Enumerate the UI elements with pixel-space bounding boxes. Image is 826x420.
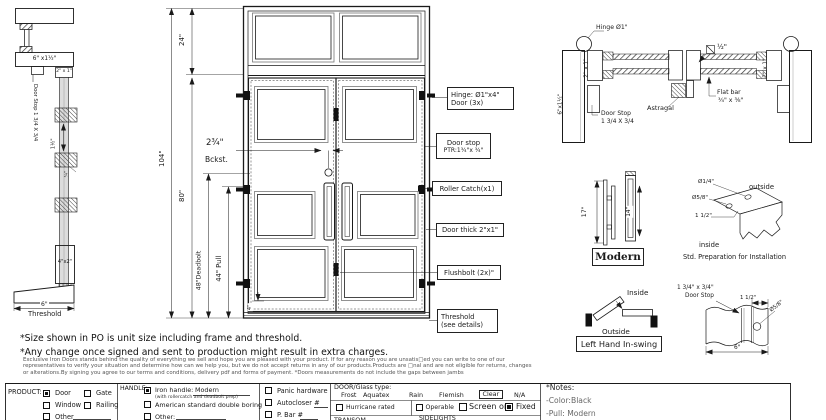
door-stop-note: Door Stop 1 3/4 X 3/4 — [32, 84, 37, 141]
glass-flemish[interactable]: Flemish — [439, 392, 464, 398]
jamb-size-label: 6" x1½" — [20, 57, 69, 63]
option-american-standard[interactable]: American standard double boring — [155, 402, 262, 408]
dim-total-height: 104" — [159, 149, 166, 168]
dim-bottom-rail: 4" — [248, 303, 253, 311]
hinge-circle-left — [577, 37, 592, 52]
checkbox-iron-handle[interactable] — [144, 387, 151, 394]
option-handle-other[interactable]: Other: — [155, 414, 175, 420]
callout-door-thick: Door thick 2"x1" — [436, 223, 504, 237]
callout-doorstop: Door stop PTR:1¾"x ¾" — [436, 133, 491, 159]
notes-pull: -Pull: Modern — [546, 410, 596, 418]
astragal-block — [672, 84, 686, 98]
transom-row-label: TRANSOM — [334, 417, 366, 420]
prep-caption: Std. Preparation for Installation — [683, 254, 786, 261]
plan-astragal-label: Astragal — [647, 105, 674, 112]
swing-handing-text: Left Hand In-swing — [581, 339, 657, 349]
small-dim: ¾" — [66, 171, 70, 177]
prep-inside-label: inside — [699, 242, 719, 249]
dim-transom-height: 24" — [179, 33, 186, 47]
option-door[interactable]: Door — [55, 390, 71, 397]
prep-dim-onehalf: 1 1/2" — [695, 214, 712, 220]
callout-hinge-line1: Hinge: Ø1"x4" — [451, 91, 500, 99]
autocloser-blank[interactable] — [314, 407, 328, 408]
checkbox-pbar[interactable] — [265, 411, 272, 418]
checkbox-hurricane[interactable] — [336, 404, 343, 411]
pull-handle-left — [324, 183, 335, 240]
checkbox-fixed[interactable] — [505, 403, 513, 411]
glass-rain[interactable]: Rain — [409, 392, 423, 398]
flushbolt-top — [334, 108, 339, 121]
note-fine-3: or alterations.By signing you agree to o… — [23, 371, 464, 376]
checkbox-product-other[interactable] — [43, 413, 50, 420]
dim-pull: 44" Pull — [216, 255, 223, 283]
glass-aquatex[interactable]: Aquatex — [363, 392, 389, 398]
checkbox-gate[interactable] — [84, 390, 91, 397]
handle-style-label: Modern — [592, 248, 644, 266]
checkbox-door[interactable] — [43, 390, 50, 397]
left-section-view — [14, 9, 77, 312]
plan-doorstop-line1: Door Stop — [601, 111, 631, 117]
callout-threshold: Threshold (see details) — [437, 309, 498, 333]
callout-hinge: Hinge: Ø1"x4" Door (3x) — [447, 87, 514, 110]
plan-bar-right-label: 2" x 1" — [763, 59, 769, 78]
callout-thick-text: Door thick 2"x1" — [442, 226, 498, 234]
iron-handle-subnote: (with rollercatch and deadbolt prep) — [155, 396, 238, 401]
dim-deadbolt: 48"Deadbolt — [197, 249, 203, 291]
plan-section — [563, 31, 812, 143]
stop-dim-width: 6" — [733, 346, 741, 352]
checkbox-american-standard[interactable] — [144, 401, 151, 408]
pbar-blank[interactable] — [300, 419, 318, 420]
checkbox-operable[interactable] — [416, 404, 423, 411]
note-fine-2: representatives to verify your situation… — [23, 364, 532, 369]
checkbox-screen[interactable] — [459, 403, 467, 411]
iron-handle-label[interactable]: Iron handle: — [155, 387, 193, 393]
stop-dim-onehalf: 1 1/2" — [740, 296, 756, 301]
product-label: PRODUCT: — [8, 389, 42, 396]
sill-block-label: 4"x2" — [55, 260, 75, 265]
option-panic-hardware[interactable]: Panic hardware — [277, 388, 328, 395]
swing-outside-label: Outside — [602, 328, 630, 335]
door-elevation — [236, 7, 435, 319]
hinge-circle-right — [784, 37, 799, 52]
dim-backset-label: Bckst. — [205, 156, 228, 164]
option-product-other[interactable]: Other — [55, 414, 74, 420]
gap-dim: 1½" — [52, 138, 57, 149]
plan-square-dim: ½" — [717, 44, 727, 51]
prep-dim-quarter: Ø1/4" — [698, 180, 714, 186]
prep-outside-label: outside — [749, 184, 774, 191]
notes-box-title: *Notes: — [546, 384, 574, 392]
swing-handing-label: Left Hand In-swing — [576, 336, 662, 352]
threshold-label: Threshold — [28, 311, 62, 318]
shop-drawing-canvas: 6" x1½" 2" x 1" Door Stop 1 3/4 X 3/4 1½… — [0, 0, 826, 420]
callout-roller-catch: Roller Catch(x1) — [432, 181, 502, 196]
option-window[interactable]: Window — [55, 402, 81, 409]
handle-dim-17: 17" — [582, 206, 588, 217]
callout-threshold-line2: (see details) — [441, 321, 483, 329]
note-changes: *Any change once signed and sent to prod… — [20, 348, 388, 357]
option-pbar[interactable]: P. Bar # — [277, 412, 303, 419]
option-autocloser[interactable]: Autocloser # — [277, 400, 320, 407]
callout-roller-text: Roller Catch(x1) — [440, 185, 495, 193]
glass-clear-selected[interactable]: Clear — [479, 390, 503, 399]
swing-inside-label: Inside — [627, 289, 648, 296]
note-size: *Size shown in PO is unit size including… — [20, 334, 302, 343]
pull-handle-right — [342, 183, 353, 240]
bar-size-label: 2" x 1" — [56, 70, 72, 75]
dim-backset: 2¾" — [206, 139, 224, 148]
option-hurricane[interactable]: Hurricane rated — [346, 405, 395, 411]
prep-detail — [709, 184, 782, 239]
flushbolt-bottom — [334, 263, 339, 276]
callout-doorstop-line2: PTR:1¾"x ¾" — [444, 147, 484, 154]
callout-hinge-line2: Door (3x) — [451, 99, 483, 107]
stop-detail-line1: 1 3/4" x 3/4" — [677, 286, 714, 292]
option-gate[interactable]: Gate — [96, 390, 112, 397]
iron-handle-value[interactable]: Modern — [195, 387, 219, 393]
option-screen[interactable]: Screen or — [469, 403, 507, 411]
checkbox-panic-hardware[interactable] — [265, 387, 272, 394]
glass-type-label: DOOR/Glass type: — [334, 384, 391, 390]
swing-detail — [586, 297, 658, 328]
deadbolt-circle — [325, 169, 332, 176]
glass-na[interactable]: N/A — [514, 392, 525, 398]
plan-bar-left-label: 2" x 1" — [584, 59, 590, 78]
plan-flatbar-line2: ¾" x ⅜" — [718, 98, 743, 104]
plan-hinge-label: Hinge Ø1" — [596, 25, 628, 31]
plan-flatbar-line1: Flat bar — [717, 90, 741, 96]
threshold-width-dim: 6" — [40, 302, 49, 308]
handle-dim-14: 14" — [627, 206, 633, 218]
checkbox-autocloser[interactable] — [265, 399, 272, 406]
checkbox-railing[interactable] — [84, 402, 91, 409]
prep-dim-fiveeighth: Ø5/8" — [692, 196, 708, 202]
option-railing[interactable]: Railing — [96, 402, 118, 409]
callout-flushbolt-text: Flushbolt (2x)" — [444, 269, 494, 277]
option-fixed[interactable]: Fixed — [516, 403, 536, 411]
stop-detail-line2: Door Stop — [685, 294, 714, 300]
callout-doorstop-line1: Door stop — [447, 139, 480, 147]
dim-door-height: 80" — [179, 189, 186, 203]
option-operable[interactable]: Operable — [426, 405, 454, 411]
plan-doorstop-line2: 1 3/4 X 3/4 — [601, 119, 634, 125]
handle-style-text: Modern — [595, 251, 641, 263]
checkbox-window[interactable] — [43, 402, 50, 409]
notes-color: -Color:Black — [546, 397, 592, 405]
sidelights-row-label: SIDELIGHTS — [419, 416, 456, 420]
callout-flushbolt: Flushbolt (2x)" — [437, 265, 501, 280]
glass-frost[interactable]: Frost — [341, 392, 356, 398]
checkbox-handle-other[interactable] — [144, 413, 151, 420]
plan-jamb-label: 6"x1½" — [558, 94, 564, 115]
elevation-dimensions — [166, 9, 448, 321]
callout-threshold-line1: Threshold — [441, 313, 475, 321]
